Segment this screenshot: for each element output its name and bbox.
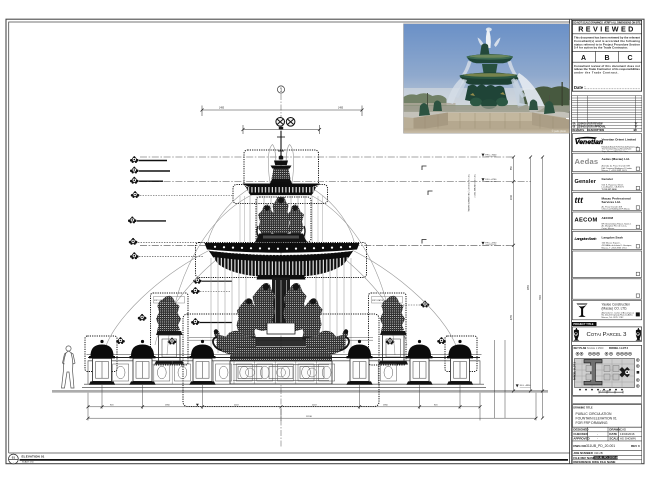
svg-text:DESIGNED: DESIGNED bbox=[573, 427, 588, 431]
svg-text:APPROVED: APPROVED bbox=[573, 437, 589, 441]
svg-text:Langdon Seah: Langdon Seah bbox=[602, 235, 623, 239]
svg-text:7600: 7600 bbox=[540, 294, 542, 300]
svg-text:-: - bbox=[597, 437, 598, 441]
svg-text:311UB_PD_20-001: 311UB_PD_20-001 bbox=[586, 444, 615, 448]
svg-text:-: - bbox=[597, 432, 598, 436]
svg-text:F.F.L +6760: F.F.L +6760 bbox=[486, 179, 498, 181]
svg-text:REV 0: REV 0 bbox=[631, 444, 640, 448]
svg-text:F.F.L +7600: F.F.L +7600 bbox=[486, 154, 498, 156]
svg-text:A: A bbox=[581, 55, 586, 62]
svg-text:PARCEL 1 LOT 2: PARCEL 1 LOT 2 bbox=[609, 347, 629, 350]
svg-text:DRAWING TITLE: DRAWING TITLE bbox=[573, 406, 593, 409]
svg-text:Gensler: Gensler bbox=[575, 179, 597, 185]
svg-text:(Macau) CO. LTD.: (Macau) CO. LTD. bbox=[602, 306, 628, 310]
svg-text:Aedas (Macau) Ltd.: Aedas (Macau) Ltd. bbox=[602, 157, 631, 161]
svg-text:ttt: ttt bbox=[575, 195, 585, 205]
svg-text:F.F.L +3950: F.F.L +3950 bbox=[520, 385, 532, 387]
svg-text:REFERENCE DWG FILE NAME: REFERENCE DWG FILE NAME bbox=[573, 460, 615, 464]
svg-text:SCALE: SCALE bbox=[609, 437, 619, 441]
svg-text:3650: 3650 bbox=[528, 284, 530, 290]
svg-text:311UB: 311UB bbox=[594, 451, 603, 455]
svg-text:2030: 2030 bbox=[511, 194, 513, 200]
svg-text:DATE: DATE bbox=[609, 432, 617, 436]
svg-text:1495: 1495 bbox=[219, 107, 225, 109]
svg-text:B: B bbox=[604, 55, 609, 62]
svg-text:AS SHOWN: AS SHOWN bbox=[620, 437, 636, 441]
svg-text:FOUNTAIN ELEVATION 01: FOUNTAIN ELEVATION 01 bbox=[576, 416, 617, 420]
svg-text:FOR FRP DRAWING: FOR FRP DRAWING bbox=[576, 421, 608, 425]
svg-text:Services Ltd.: Services Ltd. bbox=[602, 200, 621, 204]
svg-text:Venetian: Venetian bbox=[575, 139, 603, 146]
svg-text:13136: 13136 bbox=[306, 416, 313, 418]
svg-text:F.F.L +4730: F.F.L +4730 bbox=[486, 243, 498, 245]
svg-text:4780: 4780 bbox=[511, 314, 513, 320]
svg-text:ELEVATION 01: ELEVATION 01 bbox=[22, 454, 45, 458]
svg-text:1960: 1960 bbox=[165, 405, 170, 407]
svg-text:C: C bbox=[627, 55, 632, 62]
svg-text:PUBLIC CIRCULATION: PUBLIC CIRCULATION bbox=[576, 412, 612, 416]
svg-text:AECOM: AECOM bbox=[575, 218, 598, 224]
svg-text:CHECKED: CHECKED bbox=[573, 432, 587, 436]
svg-text:© paris photo: © paris photo bbox=[552, 130, 567, 133]
svg-text:Venetian Orient Limited: Venetian Orient Limited bbox=[602, 137, 637, 141]
svg-text:REVIEWED: REVIEWED bbox=[578, 25, 636, 34]
svg-text:KEY PLAN SCALE 1:2500: KEY PLAN SCALE 1:2500 bbox=[574, 347, 604, 350]
svg-text:0 10 20 30m: 0 10 20 30m bbox=[600, 391, 611, 393]
svg-text:01: 01 bbox=[12, 455, 16, 459]
svg-text:1: 1 bbox=[280, 88, 283, 94]
svg-text:JOB NUMBER: JOB NUMBER bbox=[573, 451, 593, 455]
svg-text:1495: 1495 bbox=[338, 107, 344, 109]
svg-text:Aedas: Aedas bbox=[575, 157, 599, 166]
svg-text:LangdonSeah: LangdonSeah bbox=[575, 236, 598, 241]
svg-text:CAD: CAD bbox=[620, 427, 626, 431]
svg-text:Gensler: Gensler bbox=[602, 177, 614, 181]
svg-text:DWG NO: DWG NO bbox=[573, 444, 586, 448]
svg-text:DRAWN: DRAWN bbox=[609, 427, 620, 431]
svg-text:Date :: Date : bbox=[574, 85, 586, 90]
svg-text:13/04/2016: 13/04/2016 bbox=[620, 432, 635, 436]
svg-text:1960: 1960 bbox=[383, 405, 388, 407]
svg-text:AECOM: AECOM bbox=[602, 216, 614, 220]
